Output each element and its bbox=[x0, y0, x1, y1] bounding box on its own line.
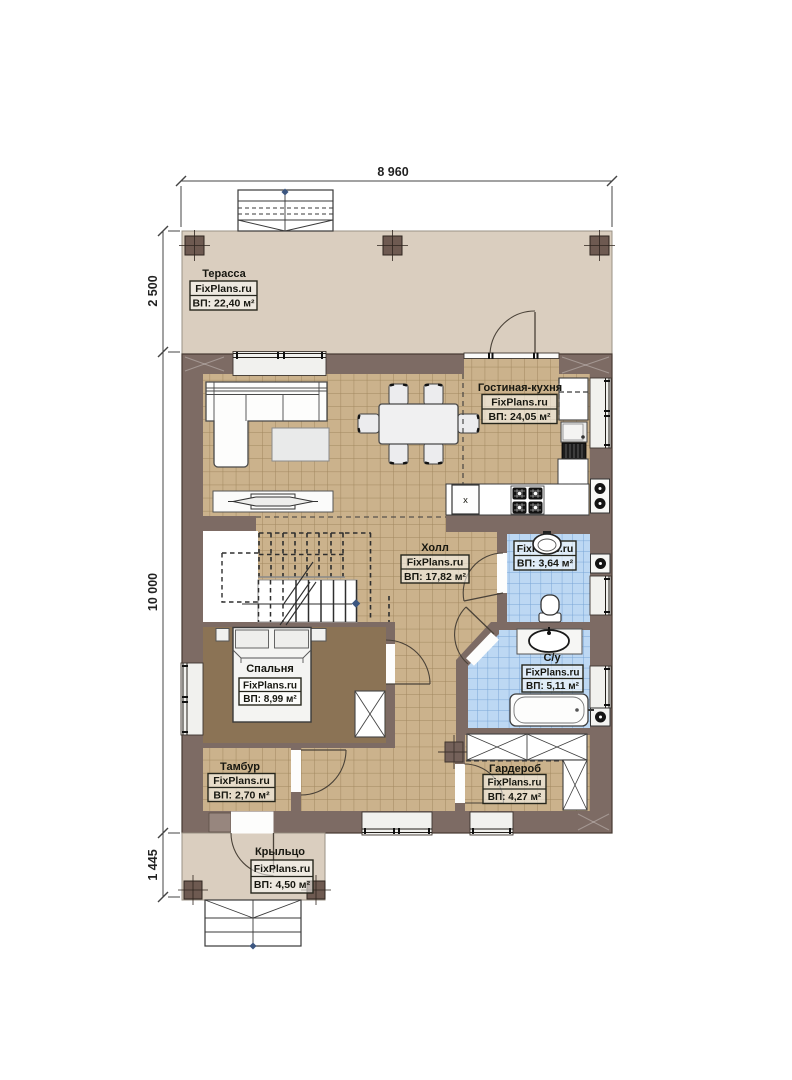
svg-text:Терасса: Терасса bbox=[202, 268, 246, 280]
svg-text:FixPlans.ru: FixPlans.ru bbox=[195, 283, 252, 295]
svg-text:FixPlans.ru: FixPlans.ru bbox=[243, 681, 297, 692]
svg-text:FixPlans.ru: FixPlans.ru bbox=[407, 557, 464, 569]
svg-text:10 000: 10 000 bbox=[146, 573, 160, 611]
svg-text:FixPlans.ru: FixPlans.ru bbox=[526, 668, 580, 679]
svg-text:Тамбур: Тамбур bbox=[220, 761, 260, 773]
svg-text:ВП: 2,70 м²: ВП: 2,70 м² bbox=[213, 790, 270, 802]
svg-text:2 500: 2 500 bbox=[146, 275, 160, 306]
svg-text:FixPlans.ru: FixPlans.ru bbox=[213, 775, 270, 787]
svg-text:Гостиная-кухня: Гостиная-кухня bbox=[478, 382, 562, 394]
svg-text:Крыльцо: Крыльцо bbox=[255, 846, 305, 858]
svg-text:Спальня: Спальня bbox=[246, 663, 294, 675]
svg-text:FixPlans.ru: FixPlans.ru bbox=[254, 863, 311, 875]
svg-text:1 445: 1 445 bbox=[146, 849, 160, 880]
svg-text:х: х bbox=[463, 495, 468, 506]
svg-text:FixPlans.ru: FixPlans.ru bbox=[491, 397, 548, 409]
svg-text:ВП: 17,82 м²: ВП: 17,82 м² bbox=[404, 571, 467, 583]
svg-text:ВП: 4,50 м²: ВП: 4,50 м² bbox=[254, 879, 311, 891]
svg-text:8 960: 8 960 bbox=[377, 165, 408, 179]
svg-text:ВП: 8,99 м²: ВП: 8,99 м² bbox=[243, 694, 297, 705]
svg-text:ВП: 3,64 м²: ВП: 3,64 м² bbox=[517, 558, 574, 570]
svg-text:ВП: 4,27 м²: ВП: 4,27 м² bbox=[488, 792, 542, 803]
svg-text:ВП: 24,05 м²: ВП: 24,05 м² bbox=[488, 411, 551, 423]
svg-text:FixPlans.ru: FixPlans.ru bbox=[488, 778, 542, 789]
svg-text:Гардероб: Гардероб bbox=[489, 763, 541, 775]
svg-text:ВП: 22,40 м²: ВП: 22,40 м² bbox=[192, 298, 255, 310]
svg-text:ВП: 5,11 м²: ВП: 5,11 м² bbox=[526, 681, 580, 692]
svg-text:С/у: С/у bbox=[543, 652, 561, 664]
svg-text:Холл: Холл bbox=[421, 542, 449, 554]
